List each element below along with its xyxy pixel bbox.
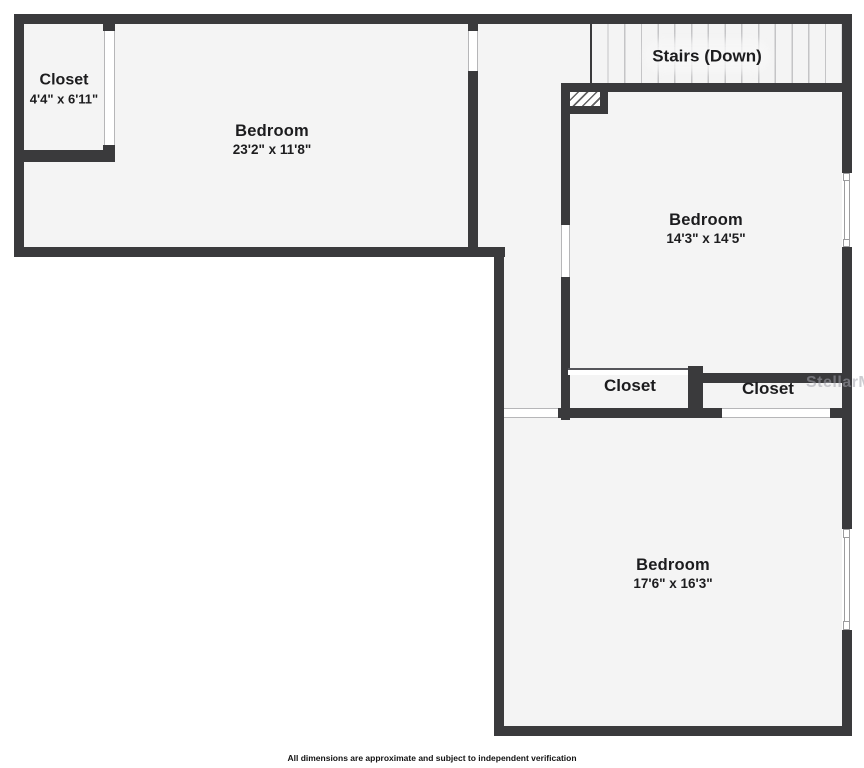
room-label-bedroom-bottom: Bedroom 17'6" x 16'3" [633,556,712,592]
window-frame [844,538,850,621]
window-cap [843,621,850,630]
wall-closets-bottom-right-seg [830,408,852,418]
room-dims: 23'2" x 11'8" [233,142,312,158]
window-cap [843,173,850,181]
room-label-bedroom-right: Bedroom 14'3" x 14'5" [666,211,745,247]
door-opening-bedroom-bottom [504,408,558,418]
door-opening-bedroom-right [561,225,570,277]
room-name: Bedroom [633,556,712,575]
wall-closets-bottom-left-seg [557,408,722,418]
window-cap [843,529,850,538]
room-dims: 14'3" x 14'5" [666,231,745,247]
door-opening-closet-right [722,408,830,418]
wall-bedroom-left-right [468,71,478,247]
room-name: Closet [30,71,98,90]
wall-stairs-bottom [561,83,852,92]
room-label-stairs: Stairs (Down) [652,47,762,68]
room-label-bedroom-left: Bedroom 23'2" x 11'8" [233,122,312,158]
door-opening-bedroom-left [468,31,478,71]
room-dims: 17'6" x 16'3" [633,576,712,592]
wall-bedroom-bottom-left [494,247,504,736]
room-dims: 4'4" x 6'11" [30,91,98,106]
wall-top-outer [14,14,852,24]
room-name: Bedroom [233,122,312,141]
footer-disclaimer: All dimensions are approximate and subje… [0,753,864,763]
floor-hall-upper [468,14,570,257]
window-bedroom-right [842,173,852,247]
wall-closet-tl-right-stub [103,24,115,31]
wall-closet-tl-right-block [103,145,115,162]
wall-bedroom-right-left-lower [561,277,570,420]
room-label-closet-right: Closet [742,379,794,399]
wall-closet-tl-bottom [14,150,115,162]
room-label-closet-middle: Closet [604,376,656,396]
floorplan-canvas: Closet 4'4" x 6'11" Bedroom 23'2" x 11'8… [0,0,864,768]
stairs-left-edge [590,24,592,83]
wall-bottom-outer [494,726,852,736]
window-cap [843,239,850,247]
window-bedroom-bottom [842,529,852,630]
wall-right-outer-low [842,630,852,736]
hatched-shaft [568,92,600,106]
window-frame [844,181,850,239]
wall-shaft-bottom [561,106,608,114]
wall-bedroom-left-right-stub [468,24,478,31]
door-opening-closet-middle [568,370,688,375]
room-label-closet-top-left: Closet 4'4" x 6'11" [30,71,98,106]
stellar-mls-watermark: StellarMLS [806,374,864,392]
stairs-label: Stairs (Down) [652,47,762,66]
room-name: Bedroom [666,211,745,230]
wall-bedroom-left-bottom [14,247,505,257]
wall-left-outer [14,14,24,257]
wall-right-outer-top [842,14,852,173]
door-opening-closet-tl [104,31,115,145]
